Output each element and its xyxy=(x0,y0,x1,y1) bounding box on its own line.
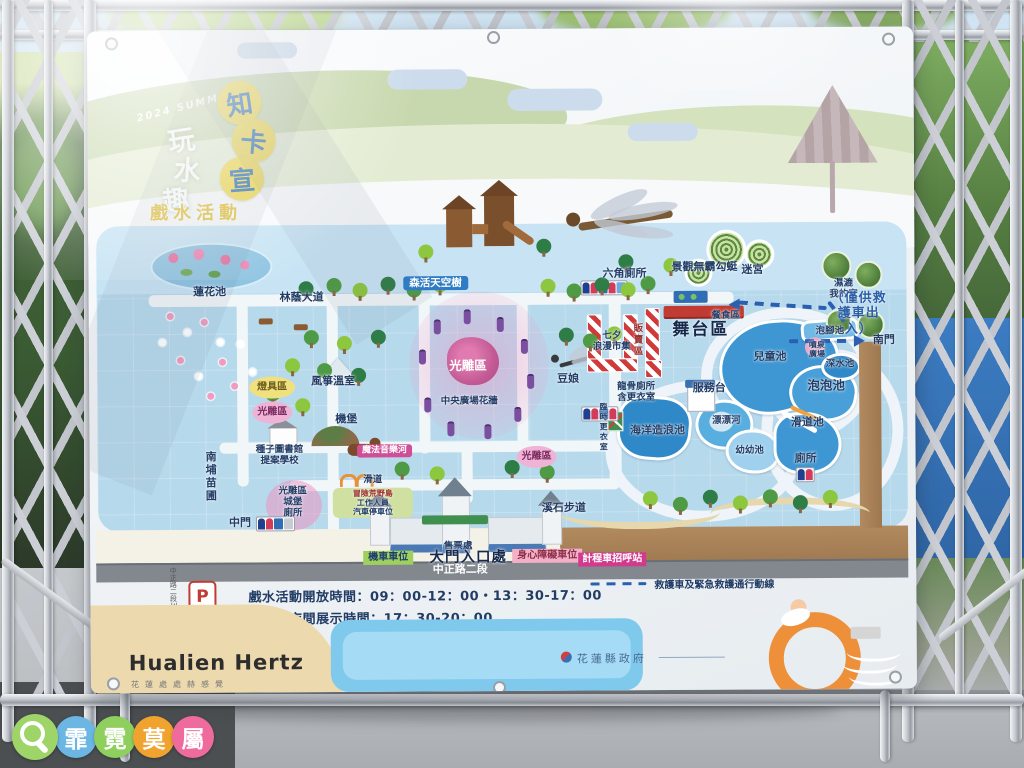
watermark-char: 莫 xyxy=(133,716,175,758)
lantern-icon xyxy=(514,407,521,422)
label-vendor-area: 販賣區 xyxy=(631,323,642,358)
flower-icon xyxy=(217,339,224,346)
label-damselfly: 豆娘 xyxy=(557,373,579,386)
cloud-icon xyxy=(628,123,698,141)
label-service-desk: 服務台 xyxy=(693,382,726,395)
playground-tower xyxy=(484,194,514,246)
road-v1 xyxy=(237,295,249,487)
lantern-icon xyxy=(521,339,528,354)
playground-roof xyxy=(442,195,476,209)
gate-roof xyxy=(438,477,472,496)
label-lamp-area: 燈具區 xyxy=(249,376,295,398)
truss-right-tube-mid xyxy=(955,0,964,700)
label-fountain-plaza: 噴泉 廣場 xyxy=(809,341,825,360)
tree-icon xyxy=(621,282,636,297)
stage-sign-tree xyxy=(691,294,697,300)
label-qixi-market: 七夕 浪漫市集 xyxy=(593,330,631,353)
label-seed-library: 種子圖書館 提案學校 xyxy=(256,444,304,467)
tree-icon xyxy=(285,358,300,373)
tree-icon xyxy=(643,491,658,506)
bench-icon xyxy=(294,324,308,330)
tree-icon xyxy=(430,466,445,481)
lantern-icon xyxy=(434,319,441,334)
tree-icon xyxy=(304,330,319,345)
label-accessible-parking: 身心障礙車位 xyxy=(512,549,582,563)
label-castle-toilet: 光雕區 城堡 廁所 xyxy=(279,485,308,519)
flower-icon xyxy=(219,359,226,366)
flower-icon xyxy=(249,369,256,376)
lotus-icon xyxy=(193,249,204,260)
lantern-icon xyxy=(424,397,431,412)
label-kite-greenhouse: 風箏溫室 xyxy=(311,375,355,388)
gate-banner xyxy=(422,515,488,524)
tree-icon xyxy=(380,277,395,292)
label-tree-avenue: 林蔭大道 xyxy=(280,292,324,305)
park-map-banner: 2024 SUMMER 玩 水 趣 知 卡 宣 戲水活動 xyxy=(87,26,917,693)
hualien-hertz-logo: Hualien Hertz xyxy=(129,650,304,675)
label-stage-area: 舞台區 xyxy=(672,320,729,340)
watermark-char: 霓 xyxy=(94,716,136,758)
brown-road-vertical xyxy=(859,342,882,528)
tree-icon xyxy=(295,398,310,413)
se-toilet-sign xyxy=(796,467,815,482)
dragonfly-head xyxy=(566,213,580,227)
corner-tag xyxy=(851,627,881,639)
damselfly-head xyxy=(551,355,559,363)
label-light-area-center: 光雕區 xyxy=(449,359,487,374)
tree-icon xyxy=(703,490,718,505)
lantern-icon xyxy=(484,424,491,439)
subtitle-water-activity: 戲水活動 xyxy=(150,199,242,226)
watermark-char: 霏 xyxy=(55,716,97,758)
opening-hours-line1: 戲水活動開放時間：09：00-12：00・13：30-17：00 xyxy=(248,584,602,605)
county-gov-line xyxy=(659,657,725,658)
label-wave-pool: 海洋造浪池 xyxy=(630,424,685,437)
truss-bottom-tube xyxy=(0,694,1024,706)
label-flower-wall: 中央廣場花牆 xyxy=(441,395,498,407)
tree-icon xyxy=(793,495,808,510)
tree-icon xyxy=(567,284,582,299)
lotus-icon xyxy=(168,253,178,263)
label-staff-parking: 工作人員 汽車停車位 xyxy=(353,498,393,517)
watermark-char: 屬 xyxy=(172,716,214,758)
label-lazy-river: 漂漂河 xyxy=(712,415,741,426)
playground-tower xyxy=(446,207,472,247)
flower-icon xyxy=(231,383,238,390)
label-light-area-mid: 光雕區 xyxy=(517,446,557,468)
label-magic-music-river: 魔法音樂河 xyxy=(357,444,412,457)
vendor-flag xyxy=(645,360,662,378)
label-slide-pool: 滑道池 xyxy=(791,417,824,430)
wetland-bush-icon xyxy=(821,251,851,281)
tree-icon xyxy=(337,336,352,351)
lotus-icon xyxy=(240,261,249,270)
photo-scene: 2024 SUMMER 玩 水 趣 知 卡 宣 戲水活動 xyxy=(0,0,1024,768)
tree-icon xyxy=(353,283,368,298)
lotus-icon xyxy=(220,255,230,265)
label-hex-toilet: 六角廁所 xyxy=(602,268,646,281)
label-stone-trail: 溪石步道 xyxy=(542,502,586,515)
tree-icon xyxy=(418,244,433,259)
label-light-area-west: 光雕區 xyxy=(252,401,292,423)
tree-icon xyxy=(395,462,410,477)
lily-pad-icon xyxy=(180,269,192,276)
truss-right-tube2 xyxy=(1010,0,1022,742)
grommet-icon xyxy=(487,31,500,44)
wetland-bush-icon xyxy=(854,261,882,289)
legend-emergency-route: 救護車及緊急救護通行動線 xyxy=(654,575,774,591)
tree-icon xyxy=(823,490,838,505)
stage-sign-tree xyxy=(679,294,685,300)
tree-icon xyxy=(763,489,778,504)
county-gov-label: 花蓮縣政府 xyxy=(577,650,647,666)
flower-icon xyxy=(167,313,174,320)
grommet-icon xyxy=(889,671,902,684)
tree-icon xyxy=(371,330,386,345)
label-south-gate: 南門 xyxy=(873,334,895,347)
label-temp-changing-room: 臨時更衣室 xyxy=(599,402,609,452)
flower-icon xyxy=(201,319,208,326)
tree-icon xyxy=(559,328,574,343)
label-children-pool: 兒童池 xyxy=(753,351,786,364)
route-arrow-icon xyxy=(729,299,740,311)
tree-icon xyxy=(326,278,341,293)
legend-dash xyxy=(590,582,646,585)
tree-icon xyxy=(505,460,520,475)
county-gov-logo-icon xyxy=(561,652,572,663)
label-maze: 迷宮 xyxy=(741,264,763,277)
tree-icon xyxy=(536,239,551,254)
lantern-icon xyxy=(447,421,454,436)
grommet-icon xyxy=(882,33,895,46)
lantern-icon xyxy=(464,309,471,324)
label-dragonbone-toilet: 龍骨廁所 含更衣室 xyxy=(617,381,655,404)
bench-icon xyxy=(259,318,273,324)
market-stall-strip xyxy=(587,358,638,372)
label-adventure-island: 冒險荒野島 xyxy=(353,489,393,499)
flower-icon xyxy=(184,329,191,336)
label-bubble-pool: 泡泡池 xyxy=(807,379,845,394)
truss-leg xyxy=(880,690,890,762)
tree-icon xyxy=(541,279,556,294)
label-deep-pool: 深水池 xyxy=(826,358,855,369)
label-sky-tree: 森活天空樹 xyxy=(403,276,468,291)
playground-bridge xyxy=(472,224,488,234)
cloud-icon xyxy=(237,42,297,58)
grommet-icon xyxy=(105,37,118,50)
gate-wall xyxy=(488,517,546,552)
label-scooter-parking: 機車車位 xyxy=(363,551,413,565)
parasol-pole xyxy=(830,161,835,213)
flower-icon xyxy=(207,393,214,400)
lily-pad-icon xyxy=(208,271,220,278)
cloud-icon xyxy=(507,88,602,111)
flower-icon xyxy=(159,339,166,346)
lantern-icon xyxy=(497,317,504,332)
flower-icon xyxy=(195,373,202,380)
lantern-icon xyxy=(527,374,534,389)
grommet-icon xyxy=(107,677,120,690)
label-middle-gate: 中門 xyxy=(229,517,251,530)
lantern-icon xyxy=(419,349,426,364)
label-toddler-pool: 幼幼池 xyxy=(735,445,764,456)
cloud-icon xyxy=(387,69,467,89)
label-lotus-pond: 蓮花池 xyxy=(193,286,226,299)
flower-icon xyxy=(237,341,244,348)
hualien-hertz-slogan: 花蓮處處赫感覺 xyxy=(131,679,229,691)
truss-top-tube xyxy=(0,0,1024,11)
label-taxi-stand: 計程車招呼站 xyxy=(578,552,646,566)
tree-icon xyxy=(733,496,748,511)
truss-left-tube xyxy=(2,0,14,742)
label-foot-bath-pool: 泡腳池 xyxy=(816,325,845,336)
label-zhongzheng-road: 中正路二段 xyxy=(433,564,488,577)
magnifier-icon xyxy=(12,714,58,760)
flower-icon xyxy=(177,357,184,364)
playground-roof xyxy=(480,180,518,196)
tree-icon xyxy=(673,497,688,512)
watermark: 霏霓莫屬 xyxy=(12,712,214,762)
label-nanpu-nursery: 南埔苗圃 xyxy=(203,451,216,503)
label-slide: 滑道 xyxy=(363,474,382,485)
label-toilet-se: 廁所 xyxy=(795,453,817,466)
label-dragonfly: 景觀無霸勾蜓 xyxy=(671,261,737,274)
label-bunker: 機堡 xyxy=(335,413,357,426)
